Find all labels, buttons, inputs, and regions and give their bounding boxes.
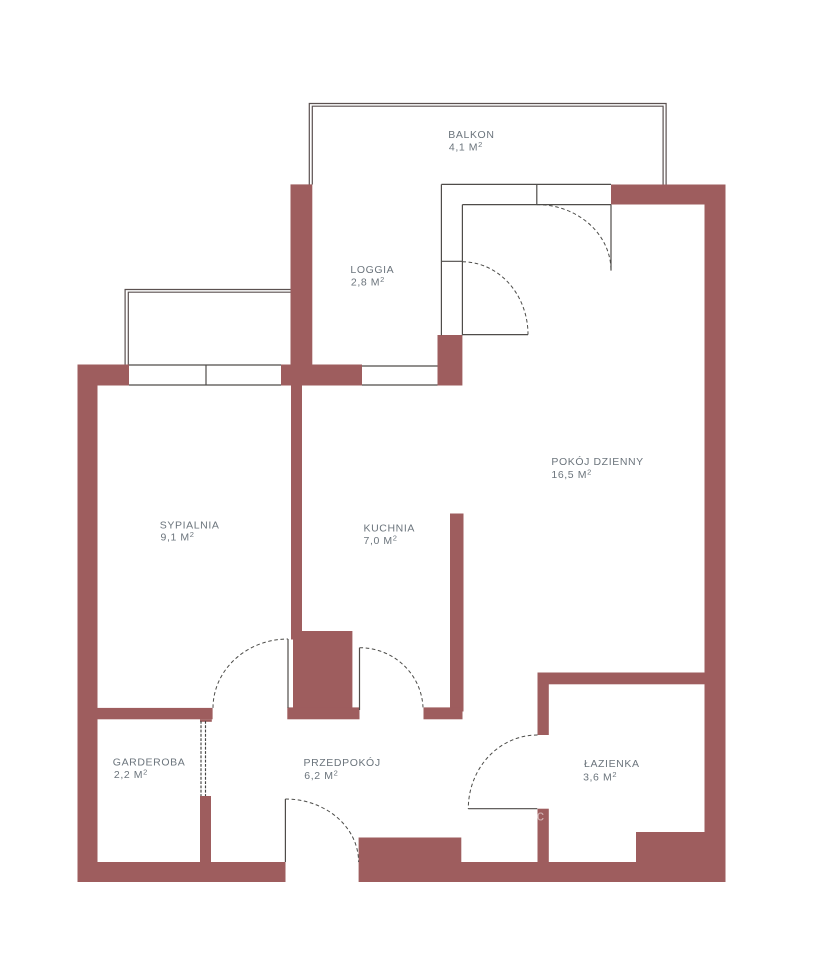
svg-text:c: c (537, 809, 544, 825)
svg-text:KUCHNIA: KUCHNIA (364, 522, 415, 534)
svg-text:POKÓJ DZIENNY: POKÓJ DZIENNY (551, 455, 643, 468)
svg-text:LOGGIA: LOGGIA (350, 264, 394, 276)
svg-text:PRZEDPOKÓJ: PRZEDPOKÓJ (304, 756, 381, 769)
svg-text:GARDEROBA: GARDEROBA (113, 756, 186, 768)
svg-text:4,1 M2: 4,1 M2 (449, 140, 483, 154)
svg-text:6,2 M2: 6,2 M2 (304, 769, 338, 783)
svg-text:BALKON: BALKON (448, 129, 494, 141)
svg-text:16,5 M2: 16,5 M2 (551, 467, 591, 481)
svg-text:ŁAZIENKA: ŁAZIENKA (584, 758, 640, 770)
svg-text:9,1 M2: 9,1 M2 (161, 530, 195, 544)
svg-text:2,8 M2: 2,8 M2 (351, 275, 385, 289)
svg-text:7,0 M2: 7,0 M2 (364, 534, 398, 548)
svg-text:2,2 M2: 2,2 M2 (114, 768, 148, 782)
svg-text:3,6 M2: 3,6 M2 (583, 770, 617, 784)
